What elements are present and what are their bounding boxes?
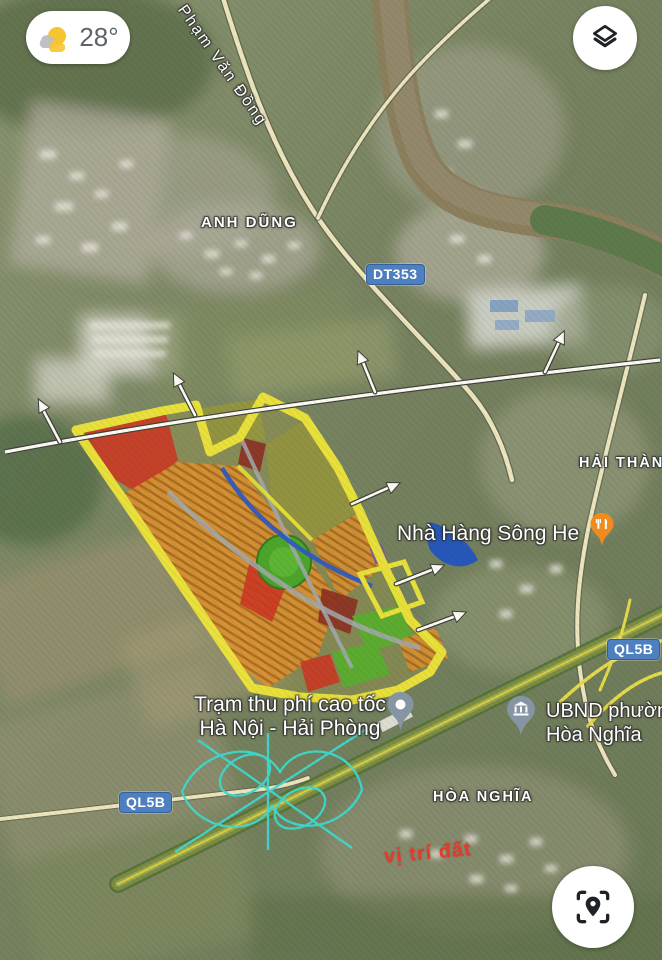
area-label-hoa-nghia[interactable]: HÒA NGHĨA	[433, 789, 533, 805]
poi-label-tram-thu-phi[interactable]: Trạm thu phí cao tốc Hà Nội - Hải Phòng	[188, 693, 392, 741]
weather-widget[interactable]: 28°	[26, 11, 130, 64]
restaurant-pin[interactable]	[589, 512, 615, 555]
partly-cloudy-icon	[37, 23, 71, 53]
locate-scan-icon	[573, 887, 613, 927]
poi-label-ubnd-hoa-nghia[interactable]: UBND phường Hòa Nghĩa	[546, 699, 662, 747]
ubnd-label-line2: Hòa Nghĩa	[546, 723, 662, 747]
map-background	[0, 0, 662, 960]
road-badge-ql5b-right: QL5B	[607, 639, 660, 660]
road-badge-dt353: DT353	[366, 264, 425, 285]
layers-button[interactable]	[573, 6, 637, 70]
toll-pin[interactable]	[386, 691, 415, 743]
toll-label-line2: Hà Nội - Hải Phòng	[188, 717, 392, 741]
government-pin[interactable]	[505, 695, 537, 746]
toll-pin-icon	[386, 691, 415, 738]
temperature-label: 28°	[79, 22, 118, 53]
locate-button[interactable]	[552, 866, 634, 948]
poi-label-nha-hang-song-he[interactable]: Nhà Hàng Sông He	[397, 522, 579, 546]
road-badge-ql5b-left: QL5B	[119, 792, 172, 813]
area-label-anh-dung[interactable]: ANH DŨNG	[201, 214, 298, 231]
government-pin-icon	[505, 695, 537, 741]
ubnd-label-line1: UBND phường	[546, 699, 662, 723]
toll-label-line1: Trạm thu phí cao tốc	[188, 693, 392, 717]
restaurant-pin-icon	[589, 512, 615, 550]
layers-icon	[589, 22, 621, 54]
satellite-map[interactable]: Phạm Văn Đồng ANH DŨNG HẢI THÀNH HÒA NGH…	[0, 0, 662, 960]
area-label-hai-thanh[interactable]: HẢI THÀNH	[579, 455, 662, 471]
